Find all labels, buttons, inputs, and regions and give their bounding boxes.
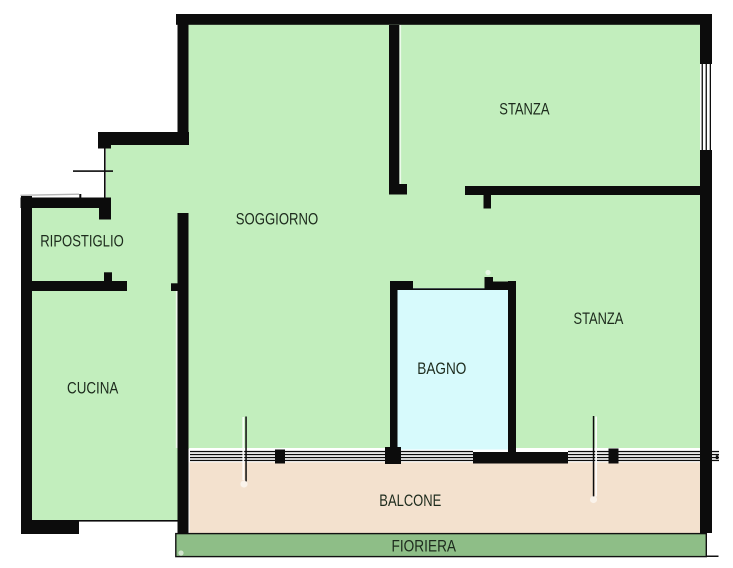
svg-text:BALCONE: BALCONE xyxy=(379,491,441,510)
svg-text:CUCINA: CUCINA xyxy=(67,379,119,398)
svg-text:FIORIERA: FIORIERA xyxy=(392,537,457,556)
svg-text:BAGNO: BAGNO xyxy=(417,359,466,378)
svg-text:STANZA: STANZA xyxy=(574,309,625,328)
svg-text:STANZA: STANZA xyxy=(499,100,550,119)
svg-text:SOGGIORNO: SOGGIORNO xyxy=(236,209,318,228)
svg-text:RIPOSTIGLIO: RIPOSTIGLIO xyxy=(40,232,124,251)
